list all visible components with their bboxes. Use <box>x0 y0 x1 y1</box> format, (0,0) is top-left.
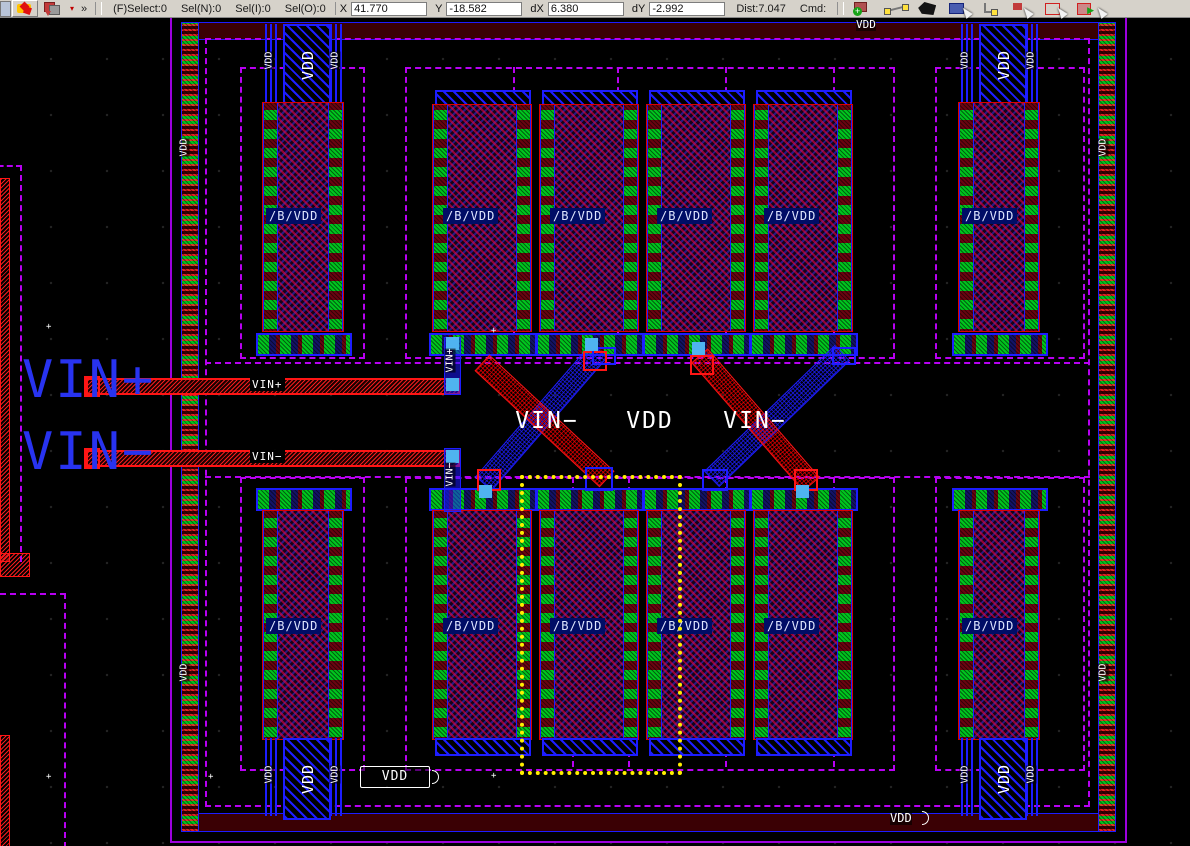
cmd-label: Cmd: <box>800 3 826 15</box>
dx-coord-label: dX <box>530 3 543 15</box>
mid-boundary-upper <box>205 362 1090 364</box>
big-vin-minus-label[interactable]: VIN− <box>22 422 155 482</box>
vdd-strap[interactable]: VDD <box>283 24 331 106</box>
guard-vdd-label[interactable]: VDD <box>179 138 190 156</box>
vdd-pin-label[interactable]: VDD <box>1026 51 1037 69</box>
guard-vdd-label[interactable]: VDD <box>1098 138 1109 156</box>
selection-box <box>520 475 682 775</box>
contact-bar[interactable] <box>952 488 1048 511</box>
layout-editor-window: ▾ » (F)Select:0 Sel(N):0 Sel(I):0 Sel(O)… <box>0 0 1190 846</box>
vdd-strap[interactable]: VDD <box>979 738 1027 820</box>
vdd-pin-label[interactable]: VDD <box>330 51 341 69</box>
vin-plus-strip-label[interactable]: VIN+ <box>445 348 456 372</box>
status-sel-o: Sel(O):0 <box>285 3 326 15</box>
origin-marker: + <box>46 322 51 332</box>
dropdown-icon[interactable]: ▾ <box>70 4 74 13</box>
status-divider <box>335 2 336 15</box>
area-select-icon-cursor <box>1052 2 1068 19</box>
toolbar: ▾ » (F)Select:0 Sel(N):0 Sel(I):0 Sel(O)… <box>0 0 1190 18</box>
create-instance-icon-plus: + <box>853 7 862 16</box>
toolbar-separator-2 <box>837 2 844 15</box>
contact-rail <box>328 511 343 739</box>
device-label[interactable]: /B/VDD <box>443 618 498 634</box>
contact-bar[interactable] <box>256 488 352 511</box>
device-label[interactable]: /B/VDD <box>962 208 1017 224</box>
vdd-pin-label[interactable]: VDD <box>1026 765 1037 783</box>
contact-rail <box>837 511 852 739</box>
via-stub <box>702 469 728 491</box>
guard-vdd-label[interactable]: VDD <box>179 663 190 681</box>
neighbor-boundary <box>0 165 22 562</box>
origin-marker: + <box>46 772 51 782</box>
vdd-pin-label[interactable]: VDD <box>330 765 341 783</box>
layout-canvas[interactable]: VDD VDD VDD /B/VDD VDD VDD VDD /B/VDD <box>0 17 1190 846</box>
contact-rail <box>1024 103 1039 331</box>
via[interactable] <box>446 378 459 391</box>
via-stub <box>690 355 714 375</box>
vdd-strap[interactable]: VDD <box>979 24 1027 106</box>
burst-icon-star2 <box>23 6 32 15</box>
ruler-icon[interactable] <box>883 1 909 16</box>
vin-plus-wire-label[interactable]: VIN+ <box>250 378 285 391</box>
vdd-pin-label[interactable]: VDD <box>960 51 971 69</box>
guard-vdd-label[interactable]: VDD <box>1098 663 1109 681</box>
create-rectangle-icon[interactable] <box>947 1 973 16</box>
contact-rail <box>837 105 852 331</box>
contact-bar[interactable] <box>256 333 352 356</box>
contact-rail <box>516 105 531 331</box>
vdd-pin-label[interactable]: VDD <box>264 51 275 69</box>
via[interactable] <box>585 338 598 351</box>
vdd-pin-box-label: VDD <box>382 769 408 784</box>
contact-rail <box>623 105 638 331</box>
x-coord-label: X <box>340 3 347 15</box>
contact-rail <box>730 511 745 739</box>
vdd-strap-label[interactable]: VDD <box>995 50 1013 80</box>
origin-marker: + <box>208 772 213 782</box>
ruler-icon-end2 <box>902 4 909 11</box>
big-vin-plus-label[interactable]: VIN+ <box>22 350 155 410</box>
net-label-vin-minus-right[interactable]: VIN− <box>700 408 810 434</box>
via[interactable] <box>446 450 459 463</box>
create-polygon-icon[interactable] <box>915 1 941 16</box>
status-sel-i: Sel(I):0 <box>235 3 270 15</box>
y-coord-field[interactable] <box>446 2 522 16</box>
y-coord-label: Y <box>435 3 442 15</box>
vdd-strap[interactable]: VDD <box>283 738 331 820</box>
via[interactable] <box>692 342 705 355</box>
device-label[interactable]: /B/VDD <box>764 618 819 634</box>
vdd-strap-label[interactable]: VDD <box>995 764 1013 794</box>
status-select: (F)Select:0 <box>113 3 167 15</box>
stretch-icon-cursor <box>1092 2 1108 19</box>
net-label-vin-minus-left[interactable]: VIN− <box>492 408 602 434</box>
vdd-pin-box[interactable]: VDD <box>360 766 430 788</box>
create-rectangle-icon-cursor <box>957 2 973 19</box>
device-label[interactable]: /B/VDD <box>266 618 321 634</box>
vin-minus-wire-label[interactable]: VIN− <box>250 450 285 463</box>
device-label[interactable]: /B/VDD <box>550 208 605 224</box>
create-path-icon-end <box>991 9 998 16</box>
vdd-strap-label[interactable]: VDD <box>299 764 317 794</box>
device-label[interactable]: /B/VDD <box>657 208 712 224</box>
x-coord-field[interactable] <box>351 2 427 16</box>
origin-marker: + <box>491 326 496 336</box>
select-icon-cursor <box>1018 2 1034 19</box>
layers-icon-mark <box>45 11 51 19</box>
area-select-icon[interactable] <box>1043 1 1069 16</box>
dy-coord-label: dY <box>632 3 645 15</box>
toolbar-separator <box>95 2 102 15</box>
stretch-icon[interactable]: ▶ <box>1075 1 1109 16</box>
device-label[interactable]: /B/VDD <box>443 208 498 224</box>
create-polygon-icon-shape <box>918 2 936 15</box>
guard-vdd-label-top[interactable]: VDD <box>856 18 876 31</box>
contact-rail <box>1024 511 1039 739</box>
dx-coord-field[interactable] <box>548 2 624 16</box>
vdd-pin-label[interactable]: VDD <box>960 765 971 783</box>
dist-label: Dist:7.047 <box>736 3 786 15</box>
origin-marker: + <box>491 771 496 781</box>
via[interactable] <box>796 485 809 498</box>
device-label[interactable]: /B/VDD <box>764 208 819 224</box>
vdd-pin-label[interactable]: VDD <box>264 765 275 783</box>
select-icon[interactable] <box>1011 1 1037 16</box>
burst-icon[interactable] <box>12 0 38 17</box>
vdd-strap-label[interactable]: VDD <box>299 50 317 80</box>
metal-cap[interactable] <box>435 738 531 756</box>
contact-rail <box>328 103 343 331</box>
ruler-icon-end1 <box>884 8 891 15</box>
guard-vdd-label-bottom-right[interactable]: VDD <box>890 811 912 825</box>
device-label[interactable]: /B/VDD <box>266 208 321 224</box>
contact-bar[interactable] <box>952 333 1048 356</box>
vin-minus-strip-label[interactable]: VIN− <box>445 462 456 486</box>
create-instance-icon[interactable]: + <box>851 1 877 16</box>
partial-toolbar-icon[interactable] <box>0 1 11 17</box>
status-sel-n: Sel(N):0 <box>181 3 221 15</box>
via-stub <box>832 347 856 365</box>
contact-rail <box>730 105 745 331</box>
layers-icon[interactable] <box>42 1 64 16</box>
metal-cap[interactable] <box>756 738 852 756</box>
net-label-vdd[interactable]: VDD <box>595 408 705 434</box>
create-path-icon[interactable] <box>979 1 1005 16</box>
device-label[interactable]: /B/VDD <box>962 618 1017 634</box>
via[interactable] <box>479 485 492 498</box>
dy-coord-field[interactable] <box>649 2 725 16</box>
neighbor-boundary <box>0 593 66 846</box>
overflow-icon[interactable]: » <box>81 3 87 15</box>
